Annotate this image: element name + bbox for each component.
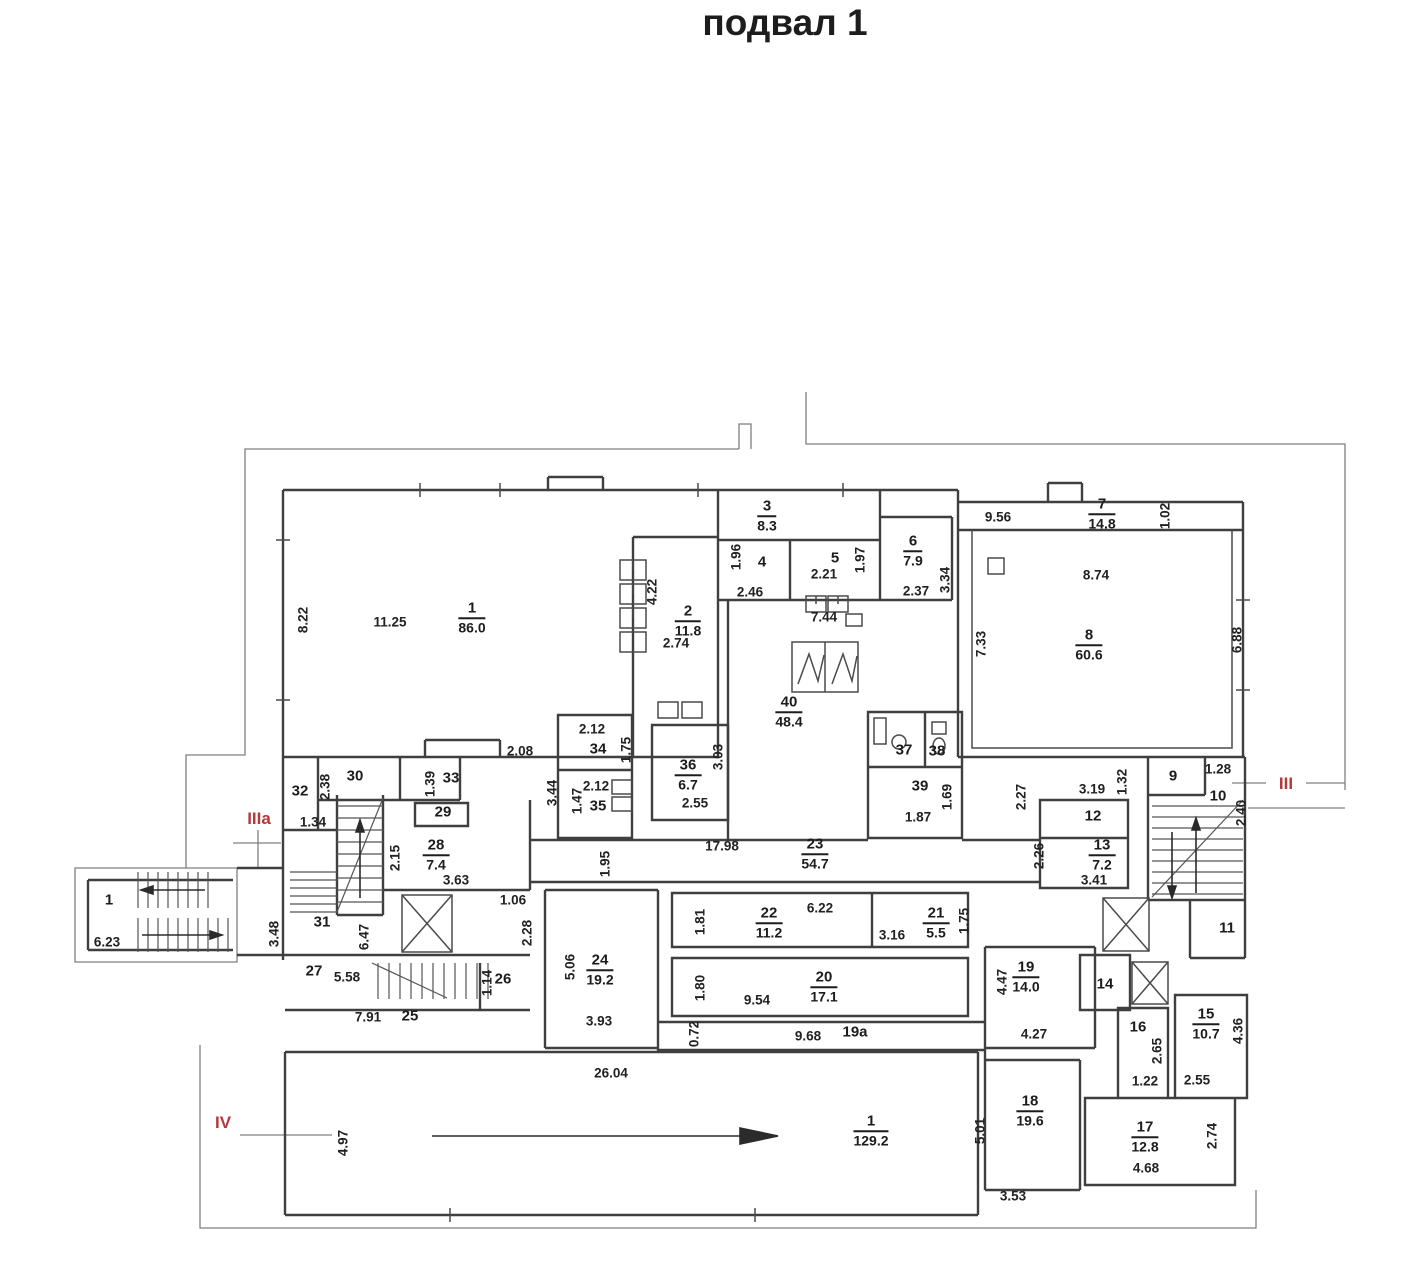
dimension-label: 6.47 — [357, 924, 372, 950]
dimension-label: 1.97 — [853, 547, 868, 573]
dimension-label: 3.16 — [879, 928, 905, 943]
room-number-32: 32 — [292, 783, 309, 800]
floor-plan-drawing — [0, 0, 1408, 1280]
dimension-label: 4.47 — [995, 969, 1010, 995]
room-number-37: 37 — [896, 742, 913, 759]
dimension-label: 1.87 — [905, 810, 931, 825]
room-number-12: 12 — [1085, 808, 1102, 825]
dimension-label: 2.12 — [579, 722, 605, 737]
dimension-label: 4.22 — [645, 579, 660, 605]
room-label-17: 1712.8 — [1131, 1119, 1158, 1154]
dimension-label: 3.34 — [938, 567, 953, 593]
dimension-label: 2.21 — [811, 567, 837, 582]
dimension-label: 9.54 — [744, 993, 770, 1008]
room-label-28: 287.4 — [423, 837, 450, 872]
room-number-35: 35 — [590, 798, 607, 815]
dimension-label: 2.55 — [682, 796, 708, 811]
stair-steps — [378, 963, 488, 999]
room-label-21: 215.5 — [923, 905, 950, 940]
dimension-label: 3.63 — [443, 873, 469, 888]
dimension-label: 5.06 — [563, 954, 578, 980]
dimension-label: 1.06 — [500, 893, 526, 908]
sink-icon — [874, 718, 886, 744]
room-label-36: 366.7 — [675, 757, 702, 792]
dimension-label: 17.98 — [705, 839, 739, 854]
room-number-27: 27 — [306, 963, 323, 980]
dimension-label: 2.28 — [520, 920, 535, 946]
room-number-19а: 19а — [842, 1024, 867, 1041]
dimension-label: 2.74 — [1205, 1123, 1220, 1149]
stair-diagonal — [372, 963, 447, 998]
dimension-label: 2.12 — [583, 779, 609, 794]
dimension-label: 1.32 — [1115, 769, 1130, 795]
dimension-label: 6.22 — [807, 901, 833, 916]
dimension-label: 2.27 — [1014, 784, 1029, 810]
dimension-label: 1.96 — [729, 544, 744, 570]
dimension-label: 5.58 — [334, 970, 360, 985]
dimension-label: 1.75 — [957, 908, 972, 934]
room-label-13: 137.2 — [1089, 837, 1116, 872]
dimension-label: 2.15 — [388, 845, 403, 871]
room-label-15: 1510.7 — [1192, 1006, 1219, 1041]
dimension-label: 9.68 — [795, 1029, 821, 1044]
room-number-30: 30 — [347, 768, 364, 785]
dimension-label: 2.08 — [507, 744, 533, 759]
room-number-5: 5 — [831, 550, 839, 567]
room-label-24: 2419.2 — [586, 952, 613, 987]
dimension-label: 2.40 — [1234, 800, 1249, 826]
dimension-label: 1.95 — [598, 851, 613, 877]
dimension-label: 11.25 — [373, 615, 406, 630]
room-number-26: 26 — [495, 971, 512, 988]
room-label-1: 1129.2 — [853, 1113, 888, 1148]
room-label-23: 2354.7 — [801, 836, 828, 871]
dimension-label: 4.97 — [336, 1130, 351, 1156]
dimension-label: 4.68 — [1133, 1161, 1159, 1176]
elevator-shaft-icon — [1103, 898, 1149, 951]
dimension-label: 1.81 — [693, 909, 708, 935]
room-label-7: 714.8 — [1088, 496, 1115, 531]
dimension-label: 3.03 — [711, 744, 726, 770]
equipment-zigzag-icon — [798, 654, 857, 684]
dimension-label: 0.72 — [687, 1021, 702, 1047]
room-label-19: 1914.0 — [1012, 959, 1039, 994]
dimension-label: 2.65 — [1150, 1038, 1165, 1064]
dimension-label: 26.04 — [594, 1066, 628, 1081]
dimension-label: 9.56 — [985, 510, 1011, 525]
room-number-25: 25 — [402, 1008, 419, 1025]
room-number-4: 4 — [758, 554, 766, 571]
room-number-11: 11 — [1219, 920, 1235, 937]
dimension-label: 7.44 — [811, 610, 837, 625]
elevator-shaft-icon — [1132, 962, 1168, 1004]
room-number-10: 10 — [1210, 788, 1227, 805]
dimension-label: 2.38 — [318, 774, 333, 800]
room-number-14: 14 — [1097, 976, 1114, 993]
room-label-40: 4048.4 — [775, 694, 802, 729]
room-label-6: 67.9 — [903, 533, 922, 568]
floor-plan-page: подвал 1 — [0, 0, 1408, 1280]
room-label-8: 860.6 — [1075, 627, 1102, 662]
dimension-label: 1.75 — [619, 737, 634, 763]
dimension-label: 3.19 — [1079, 782, 1105, 797]
stair-steps — [1152, 806, 1243, 894]
room-label-3: 38.3 — [757, 498, 776, 533]
dimension-label: 1.39 — [423, 771, 438, 797]
room35-fixtures — [612, 780, 632, 811]
room-number-1: 1 — [105, 892, 113, 909]
dimension-label: 3.53 — [1000, 1189, 1026, 1204]
section-marker-IIIa: IIIa — [247, 809, 271, 829]
dimension-label: 7.33 — [974, 631, 989, 657]
room-number-34: 34 — [590, 741, 607, 758]
dimension-label: 5.01 — [973, 1118, 988, 1144]
room-label-20: 2017.1 — [810, 969, 837, 1004]
walls — [88, 477, 1247, 1215]
dimension-label: 2.37 — [903, 584, 929, 599]
dimension-label: 6.23 — [94, 935, 120, 950]
dimension-label: 2.55 — [1184, 1073, 1210, 1088]
dimension-label: 1.47 — [570, 788, 585, 814]
dimension-label: 8.74 — [1083, 568, 1109, 583]
room-number-33: 33 — [443, 770, 460, 787]
dimension-label: 3.44 — [545, 780, 560, 806]
elevator-shaft-icon — [402, 895, 452, 952]
dimension-label: 8.22 — [296, 607, 311, 633]
room-number-31: 31 — [314, 914, 331, 931]
room-label-18: 1819.6 — [1016, 1093, 1043, 1128]
toilet-tank-icon — [932, 722, 946, 734]
dimension-label: 7.91 — [355, 1010, 381, 1025]
dimension-label: 1.34 — [300, 815, 326, 830]
dimension-label: 1.14 — [480, 970, 495, 996]
room-number-29: 29 — [435, 804, 452, 821]
dimension-label: 6.88 — [1230, 627, 1245, 653]
dimension-label: 1.69 — [940, 784, 955, 810]
stair-steps — [290, 872, 337, 912]
dimension-label: 1.22 — [1132, 1074, 1158, 1089]
room36-fixtures — [658, 702, 702, 718]
room-number-16: 16 — [1130, 1019, 1147, 1036]
room-label-1: 186.0 — [458, 600, 485, 635]
dimension-label: 2.46 — [737, 585, 763, 600]
room-label-22: 2211.2 — [756, 905, 783, 940]
section-marker-III: III — [1279, 774, 1293, 794]
dimension-label: 1.28 — [1205, 762, 1231, 777]
room-number-39: 39 — [912, 778, 929, 795]
dimension-label: 3.48 — [267, 921, 282, 947]
dimension-label: 2.26 — [1032, 843, 1047, 869]
dimension-label: 3.93 — [586, 1014, 612, 1029]
dimension-label: 1.80 — [693, 975, 708, 1001]
room-number-9: 9 — [1169, 768, 1177, 785]
dimension-label: 4.27 — [1021, 1027, 1047, 1042]
dimension-label: 4.36 — [1231, 1018, 1246, 1044]
section-marker-IV: IV — [215, 1113, 231, 1133]
column-symbol — [988, 558, 1004, 574]
room-label-2: 211.8 — [675, 603, 701, 638]
dimension-label: 1.02 — [1158, 503, 1173, 529]
corridor-arrow-head — [740, 1128, 778, 1144]
dimension-label: 3.41 — [1081, 873, 1107, 888]
room-number-38: 38 — [929, 743, 946, 760]
